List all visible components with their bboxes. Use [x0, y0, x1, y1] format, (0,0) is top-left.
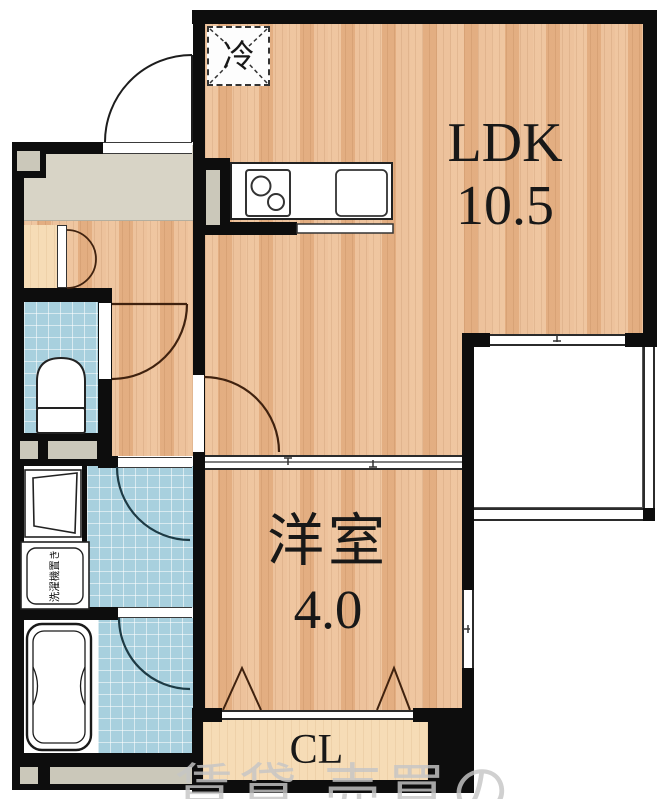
wall-ldk-west-upper — [193, 24, 205, 233]
ldk-label-block: LDK 10.5 — [420, 112, 590, 238]
bathroom-floor-white — [24, 618, 98, 755]
shower-door-gap — [118, 457, 192, 468]
entrance-door-threshold — [103, 142, 192, 154]
western-room-size: 4.0 — [294, 579, 363, 640]
wall-toilet-top — [12, 288, 98, 302]
laundry-label: 洗濯機置き — [49, 546, 61, 606]
wall-hall-west-foot — [98, 456, 118, 468]
balcony-window — [490, 334, 625, 346]
kitchen-side-panel — [206, 170, 220, 225]
ldk-label: LDK — [447, 112, 562, 174]
shelf-block-b — [48, 441, 97, 459]
balcony — [473, 345, 643, 508]
shower-room-floor — [87, 466, 193, 608]
entrance-floor — [24, 145, 193, 221]
western-room-label: 洋室 — [267, 510, 389, 573]
closet-threshold — [222, 710, 413, 720]
balcony-rail-corner — [643, 508, 655, 521]
wall-balcony-top-right — [625, 333, 657, 347]
bath-door-gap — [118, 607, 192, 618]
bathroom-floor-tile — [98, 618, 193, 755]
wall-east-lower — [462, 668, 474, 710]
kitchen-counter — [230, 162, 393, 220]
toilet-floor — [24, 302, 98, 434]
floor-plan: LDK 10.5 洋室 4.0 CL 冷 洗濯機置き 賃貸 売買の — [0, 0, 665, 799]
refrigerator-label: 冷 — [207, 36, 270, 76]
sliding-partition — [205, 455, 462, 470]
balcony-rail-bottom — [473, 508, 655, 521]
meter-box — [17, 151, 40, 171]
ldk-floor-lower — [205, 335, 462, 456]
western-room-label-block: 洋室 4.0 — [233, 508, 423, 644]
wall-right — [643, 24, 657, 347]
shelf-block-a — [20, 441, 38, 459]
shoe-cabinet — [22, 225, 57, 288]
wall-top — [192, 10, 657, 24]
balcony-rail-right — [643, 345, 655, 521]
entrance-door-swing — [105, 55, 192, 142]
wall-cl-left-top — [192, 708, 222, 722]
wall-east-upper — [462, 347, 474, 590]
ldk-door-gap — [193, 375, 204, 452]
porch-block-b — [50, 767, 192, 784]
watermark-text: 賃貸 売買の — [175, 744, 516, 799]
wall-center-west — [193, 233, 205, 722]
toilet-door-gap — [99, 303, 111, 379]
wall-balcony-top-left — [462, 333, 490, 347]
wall-bath-top — [12, 607, 118, 620]
side-window — [462, 590, 474, 668]
shoe-cabinet-door — [57, 225, 67, 288]
wall-washroom-shower — [82, 466, 87, 608]
porch-block-a — [20, 767, 38, 784]
ldk-size: 10.5 — [456, 175, 554, 237]
